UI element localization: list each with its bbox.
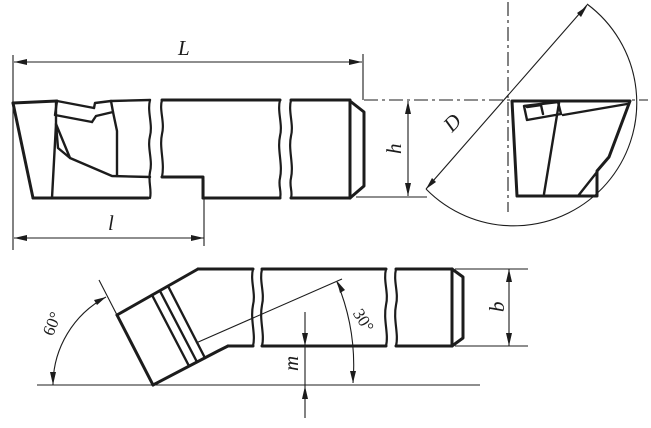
dimension-b: b bbox=[455, 269, 528, 346]
arrowhead bbox=[506, 269, 512, 282]
diameter-label: D bbox=[438, 109, 466, 137]
arrowhead bbox=[405, 101, 411, 114]
arrowhead bbox=[14, 59, 27, 65]
endview-chamfer bbox=[578, 172, 597, 196]
width-label: b bbox=[485, 302, 509, 313]
head-seat-lines bbox=[56, 124, 150, 177]
break-line bbox=[149, 100, 151, 198]
arrowhead bbox=[191, 235, 204, 241]
break-line bbox=[261, 269, 263, 346]
height-label: h bbox=[382, 144, 406, 155]
break-line bbox=[279, 100, 281, 198]
break-line bbox=[252, 269, 254, 346]
tool-drawing-svg: D L l h bbox=[0, 0, 651, 428]
dimension-l: l bbox=[14, 180, 204, 246]
break-line bbox=[290, 100, 292, 198]
arrowhead bbox=[506, 333, 512, 346]
tip-angle-label: 30° bbox=[349, 305, 378, 335]
endview-outline bbox=[512, 101, 630, 196]
insert-plate bbox=[55, 101, 94, 122]
plan-end-chamfer bbox=[452, 269, 463, 346]
dimension-L: L bbox=[13, 36, 363, 250]
angle-arc bbox=[53, 297, 106, 385]
endview-top-band bbox=[563, 104, 627, 115]
extension-line bbox=[99, 280, 117, 315]
arrowhead bbox=[337, 281, 345, 293]
break-line bbox=[161, 100, 163, 177]
head-length-label: l bbox=[108, 211, 114, 235]
bore-circle-arc bbox=[426, 4, 637, 226]
length-label: L bbox=[177, 36, 190, 60]
diameter-line bbox=[426, 5, 587, 189]
drawing-sheet: D L l h bbox=[0, 0, 651, 428]
offset-label: m bbox=[279, 356, 303, 371]
dimension-m: m bbox=[279, 312, 308, 418]
angle-arc bbox=[337, 282, 354, 383]
main-view bbox=[13, 100, 364, 198]
head-top-after-notch bbox=[111, 100, 150, 101]
head-left-edge bbox=[13, 103, 33, 198]
shank-step bbox=[162, 177, 203, 198]
arrowhead bbox=[14, 235, 27, 241]
shank-end-chamfer bbox=[350, 101, 364, 198]
break-line bbox=[385, 269, 387, 346]
insert-seam-lines bbox=[152, 286, 205, 366]
dimension-h: h bbox=[356, 101, 427, 197]
head-angle-label: 60° bbox=[39, 309, 66, 338]
arrowhead bbox=[50, 372, 56, 385]
break-line bbox=[395, 269, 397, 346]
head-left-edge-plan bbox=[117, 315, 153, 385]
edge-line bbox=[196, 279, 342, 343]
arrowhead bbox=[405, 183, 411, 196]
arrowhead bbox=[349, 59, 362, 65]
arrowhead bbox=[350, 371, 356, 383]
arrowhead bbox=[302, 386, 308, 399]
insert-notch bbox=[92, 101, 113, 122]
arrowhead bbox=[302, 333, 308, 346]
head-seat-vertical bbox=[113, 112, 117, 176]
head-top-edge bbox=[13, 101, 57, 103]
dimension-60deg: 60° bbox=[37, 280, 480, 385]
